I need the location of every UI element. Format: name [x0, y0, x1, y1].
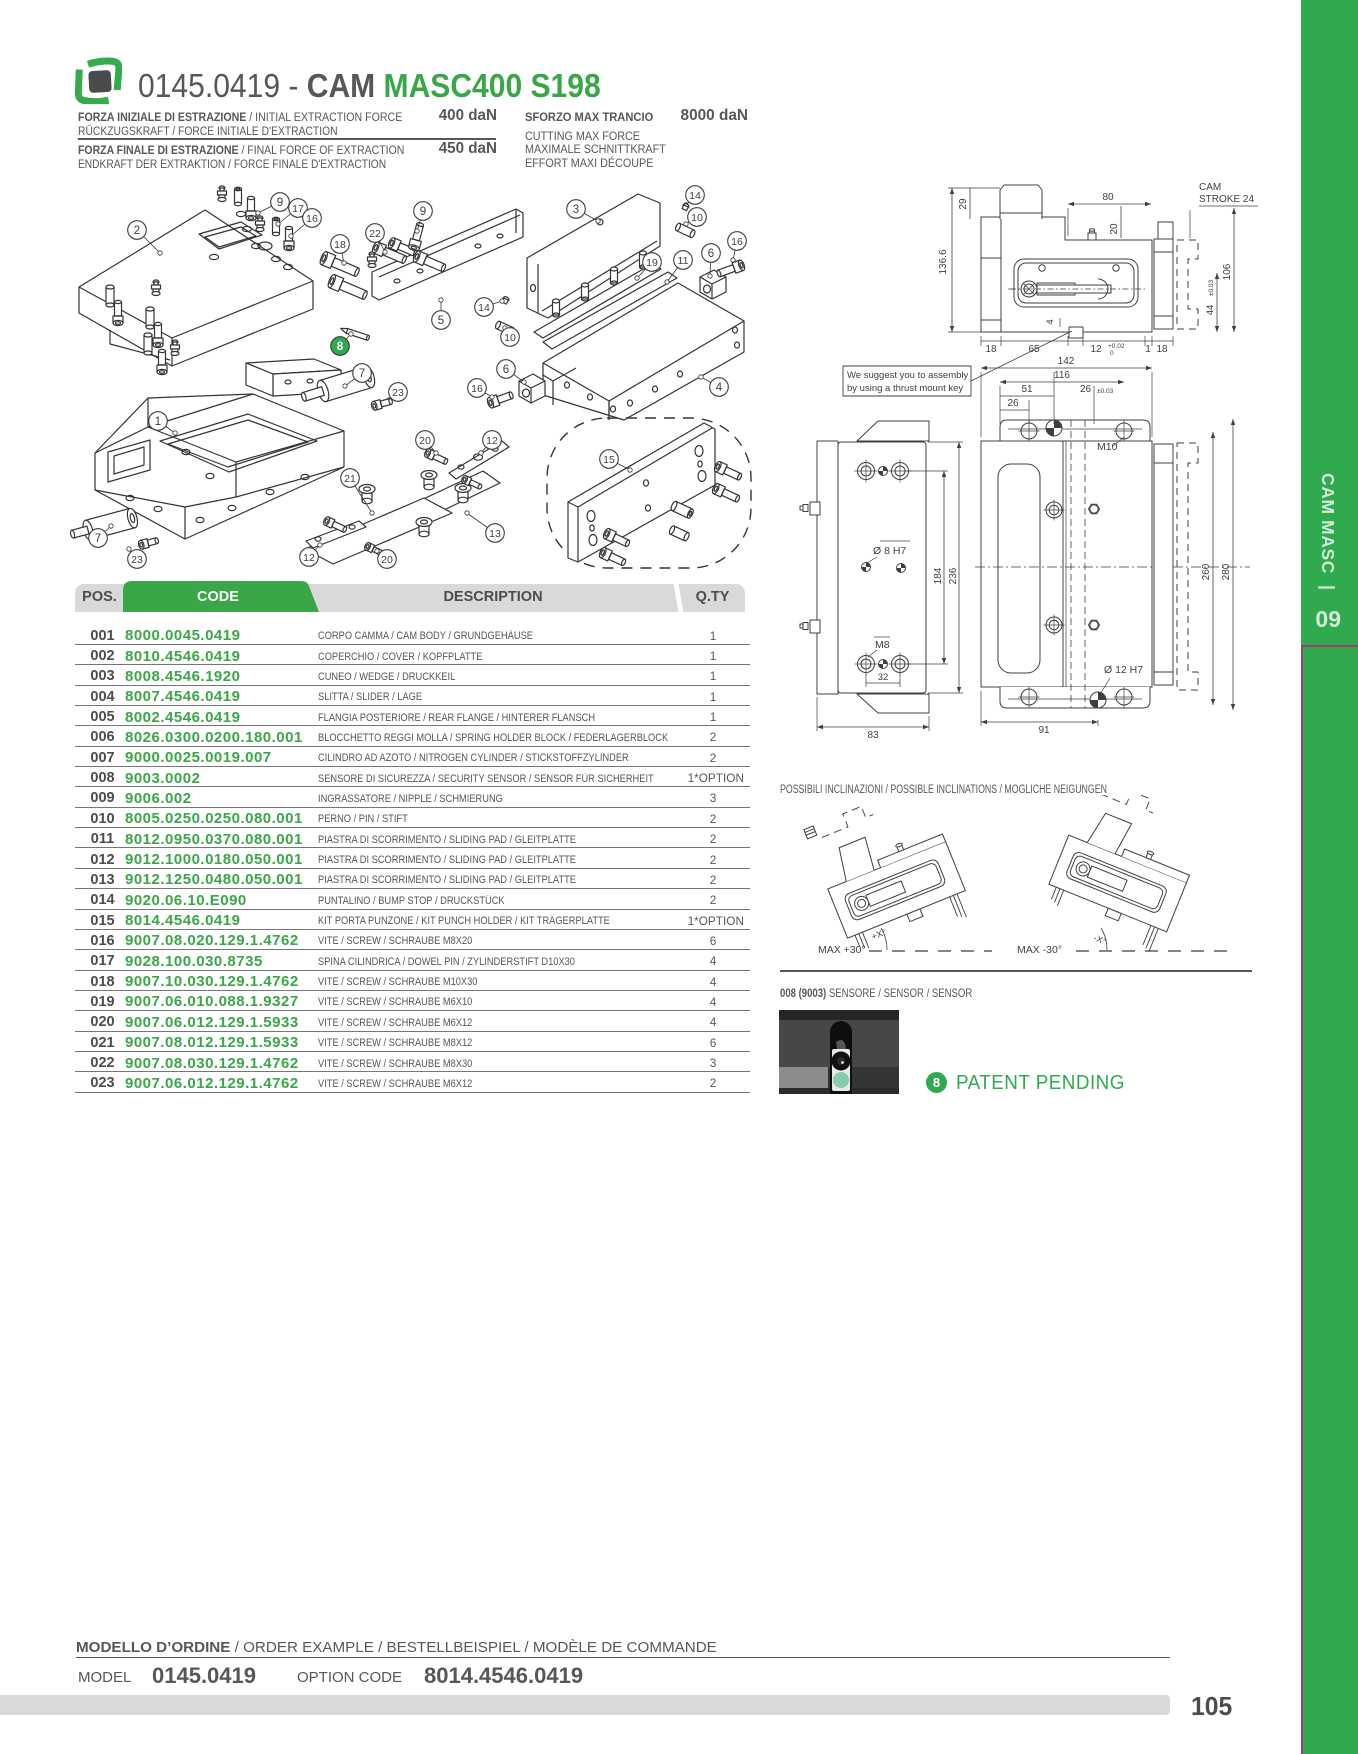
svg-text:20: 20 — [1109, 223, 1120, 235]
svg-text:CAM: CAM — [1199, 182, 1221, 193]
svg-text:6: 6 — [708, 248, 714, 260]
svg-text:23: 23 — [131, 554, 143, 566]
svg-text:44: 44 — [1205, 305, 1216, 316]
svg-text:260: 260 — [1201, 563, 1212, 580]
svg-text:9: 9 — [420, 206, 426, 218]
svg-text:7: 7 — [359, 368, 365, 380]
svg-text:by using a thrust mount key: by using a thrust mount key — [847, 383, 963, 394]
svg-text:18: 18 — [334, 239, 346, 251]
svg-text:MAX -30°: MAX -30° — [1017, 944, 1062, 956]
svg-text:106: 106 — [1222, 263, 1233, 280]
svg-text:12: 12 — [1090, 344, 1102, 355]
svg-text:26: 26 — [1007, 398, 1019, 409]
svg-text:5: 5 — [438, 315, 444, 327]
svg-text:16: 16 — [306, 213, 318, 225]
svg-text:7: 7 — [95, 533, 101, 545]
svg-text:21: 21 — [344, 473, 356, 485]
svg-text:20: 20 — [419, 435, 431, 447]
svg-text:12: 12 — [486, 435, 498, 447]
svg-text:M10: M10 — [1097, 441, 1118, 453]
svg-text:16: 16 — [471, 383, 483, 395]
svg-text:14: 14 — [689, 190, 701, 202]
svg-text:-X°: -X° — [1092, 933, 1108, 947]
svg-text:Ø 8 H7: Ø 8 H7 — [873, 545, 906, 557]
svg-text:18: 18 — [985, 344, 997, 355]
svg-text:184: 184 — [933, 567, 944, 584]
svg-text:3: 3 — [573, 204, 579, 216]
svg-text:M8: M8 — [875, 639, 890, 651]
svg-text:23: 23 — [392, 387, 404, 399]
svg-text:18: 18 — [1156, 344, 1168, 355]
svg-text:4: 4 — [1045, 319, 1056, 324]
svg-text:2: 2 — [134, 225, 140, 237]
svg-text:8: 8 — [337, 341, 344, 353]
svg-text:22: 22 — [369, 228, 381, 240]
svg-text:142: 142 — [1058, 356, 1075, 367]
svg-text:11: 11 — [678, 255, 689, 267]
svg-text:1: 1 — [1145, 344, 1151, 355]
svg-text:80: 80 — [1102, 192, 1114, 203]
svg-text:4: 4 — [716, 382, 723, 394]
svg-text:51: 51 — [1021, 384, 1033, 395]
svg-text:STROKE 24: STROKE 24 — [1199, 194, 1254, 205]
svg-text:1: 1 — [155, 416, 161, 428]
svg-text:6: 6 — [503, 364, 509, 376]
svg-text:19: 19 — [646, 257, 658, 269]
svg-text:14: 14 — [478, 302, 490, 314]
svg-text:29: 29 — [958, 198, 969, 210]
svg-text:136.6: 136.6 — [938, 249, 949, 274]
svg-text:±0.03: ±0.03 — [1097, 388, 1114, 395]
svg-text:20: 20 — [381, 554, 393, 566]
svg-text:+X°: +X° — [870, 927, 888, 942]
svg-text:9: 9 — [277, 197, 283, 209]
svg-text:17: 17 — [292, 203, 304, 215]
svg-text:15: 15 — [603, 454, 615, 466]
svg-text:13: 13 — [489, 528, 501, 540]
svg-text:83: 83 — [867, 730, 879, 741]
svg-text:±0.03: ±0.03 — [1208, 280, 1215, 297]
svg-text:+0.02: +0.02 — [1108, 343, 1125, 350]
svg-text:280: 280 — [1221, 563, 1232, 580]
svg-text:10: 10 — [504, 332, 516, 344]
svg-text:MAX +30°: MAX +30° — [818, 944, 866, 956]
svg-text:116: 116 — [1054, 370, 1070, 381]
svg-text:12: 12 — [303, 552, 315, 564]
svg-text:We suggest you to assembly: We suggest you to assembly — [847, 370, 969, 381]
svg-text:91: 91 — [1038, 725, 1050, 736]
svg-text:26: 26 — [1080, 384, 1092, 395]
svg-text:16: 16 — [731, 236, 743, 248]
svg-text:236: 236 — [948, 567, 959, 584]
svg-text:0: 0 — [1110, 350, 1114, 357]
svg-text:32: 32 — [878, 672, 889, 683]
svg-text:Ø 12 H7: Ø 12 H7 — [1104, 664, 1143, 676]
svg-text:10: 10 — [691, 212, 703, 224]
